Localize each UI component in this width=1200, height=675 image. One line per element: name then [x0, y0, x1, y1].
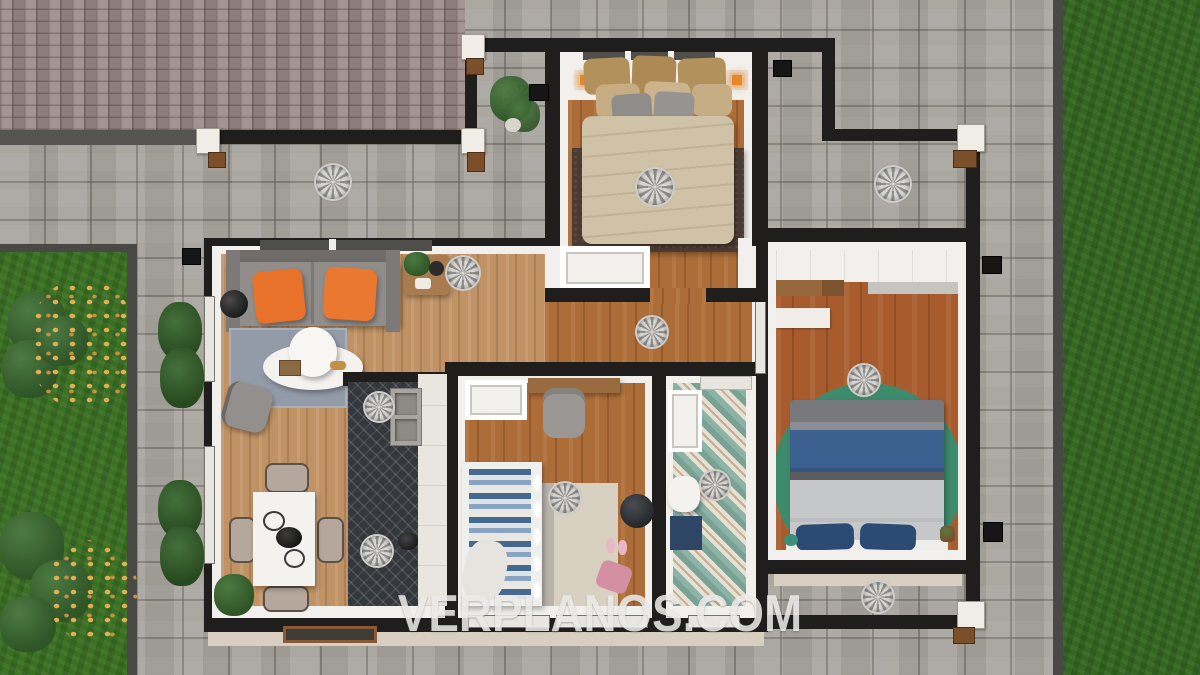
ceiling-fan-icon	[365, 393, 393, 421]
lawn-right	[1063, 0, 1200, 675]
bedroom2-bottom-wall	[768, 560, 980, 574]
dining-chair	[317, 517, 344, 563]
exterior-light-fixture	[983, 522, 1003, 542]
ceiling-fan-icon	[637, 317, 667, 347]
sink-basin	[395, 393, 417, 415]
floor-lamp	[220, 290, 248, 318]
sofa-cushion-orange	[251, 268, 306, 325]
floor-plan-render: VERPLANOS.COM	[0, 0, 1200, 675]
ceiling-fan-icon	[637, 169, 673, 205]
ceiling-fan-icon	[701, 471, 729, 499]
bathroom-vanity	[668, 390, 702, 452]
bedroom1-right-wall	[752, 38, 768, 238]
ceiling-fan-icon	[849, 365, 879, 395]
slipper	[618, 540, 627, 555]
hedge-shrub	[160, 526, 204, 586]
bedroom1-top-wall	[465, 38, 835, 52]
window	[755, 294, 766, 374]
bedroom2-closet	[776, 250, 958, 282]
post-base	[466, 58, 484, 75]
east-wall	[966, 148, 980, 629]
bedroom1-bottom-wall	[705, 288, 768, 302]
cooktop-pot	[398, 532, 418, 550]
ceiling-fan-icon	[876, 167, 910, 201]
paving-edge	[0, 130, 200, 145]
bedroom2-top-wall	[768, 228, 980, 242]
pillow-navy	[796, 523, 855, 550]
bedroom2-floor-area	[776, 250, 958, 550]
partition-wall	[652, 362, 666, 618]
post-base	[467, 152, 485, 172]
slipper	[606, 538, 615, 553]
watermark-text: VERPLANOS.COM	[72, 588, 1128, 640]
window	[204, 296, 215, 382]
sofa-cushion-seam	[311, 262, 314, 324]
door-opening	[650, 288, 706, 304]
exterior-light-fixture	[773, 60, 792, 77]
kitchen-sink	[390, 388, 422, 446]
hedge-shrub	[160, 348, 204, 408]
exterior-light-fixture	[182, 248, 201, 265]
bedroom1-closet	[560, 246, 650, 290]
pergola-post	[461, 128, 485, 154]
kids-bed-lights	[532, 464, 542, 604]
shower-ledge	[700, 376, 752, 390]
post-base	[208, 152, 226, 168]
pergola-post	[196, 128, 220, 154]
decor-plant	[940, 526, 955, 542]
pillow	[692, 84, 732, 116]
sink-basin	[395, 419, 417, 441]
sofa-cushion-orange	[322, 266, 378, 322]
exterior-light-fixture	[982, 256, 1002, 274]
kids-chair	[543, 388, 585, 438]
patio-wall	[822, 129, 968, 141]
pergola-post	[461, 34, 485, 60]
closet-shelf	[776, 280, 844, 296]
table-decor	[330, 361, 346, 370]
ceiling-fan-icon	[362, 536, 392, 566]
ceiling-fan-icon	[316, 165, 350, 199]
ceiling-fan-icon	[447, 257, 479, 289]
table-tray	[279, 360, 301, 376]
ceiling-fan-icon	[550, 483, 580, 513]
toilet	[668, 476, 700, 512]
window	[204, 446, 215, 564]
kids-closet	[465, 380, 527, 420]
sofa-arm	[386, 250, 400, 332]
place-setting	[284, 549, 305, 568]
patio-post	[957, 124, 985, 152]
partition-wall	[445, 362, 768, 376]
planter-pot	[505, 118, 521, 132]
dining-chair	[265, 463, 309, 493]
exterior-light-fixture	[529, 84, 549, 101]
fallen-leaves	[28, 278, 138, 410]
table-book	[415, 278, 431, 289]
patio-wall	[822, 47, 835, 133]
potted-plant	[404, 252, 430, 276]
lamp-glow-icon	[732, 75, 742, 85]
serving-bowl	[276, 527, 302, 548]
pillow-navy	[860, 523, 917, 550]
table-lamp	[429, 261, 444, 276]
dining-chair	[229, 517, 256, 563]
closet-panel	[868, 282, 958, 294]
bath-mat	[670, 516, 702, 550]
beanbag	[620, 494, 654, 528]
pergola-beam	[215, 130, 467, 144]
kitchen-counter	[418, 374, 447, 606]
post-base	[953, 150, 977, 168]
decor-cup	[784, 534, 798, 546]
nightstand	[776, 308, 830, 328]
bedroom1-bottom-wall	[545, 288, 655, 302]
brick-paving	[0, 0, 465, 130]
